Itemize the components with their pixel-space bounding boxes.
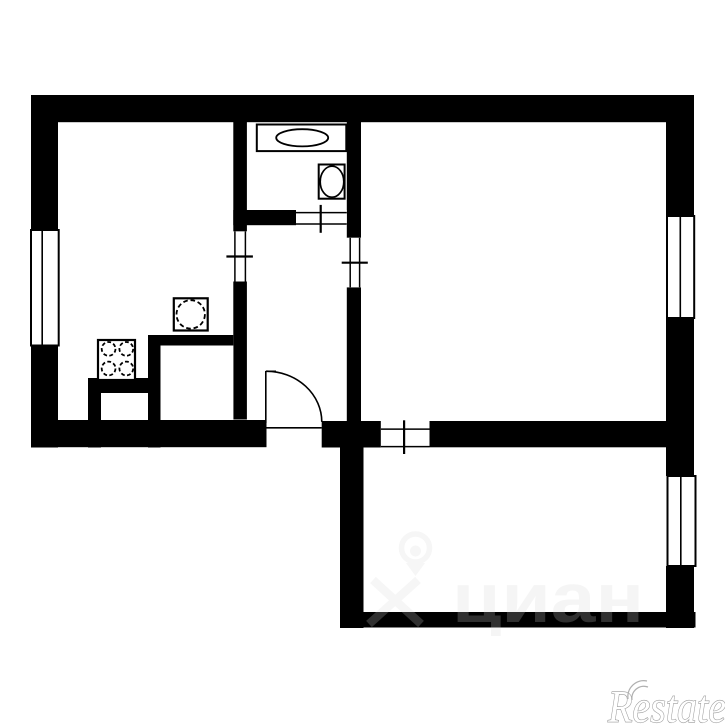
svg-text:циан: циан (452, 559, 644, 637)
svg-text:Restate: Restate (607, 681, 725, 725)
